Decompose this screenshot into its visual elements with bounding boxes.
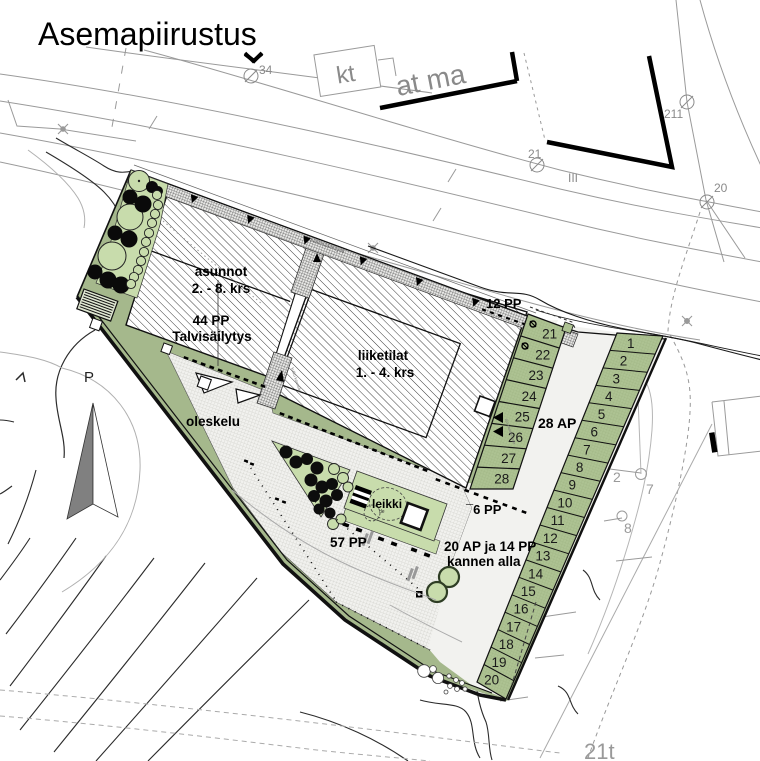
svg-text:44 PP: 44 PP: [193, 313, 230, 328]
svg-text:14: 14: [528, 566, 544, 581]
svg-text:3: 3: [612, 371, 620, 386]
svg-text:1. - 4. krs: 1. - 4. krs: [356, 365, 415, 380]
svg-text:kannen alla: kannen alla: [447, 554, 521, 569]
svg-text:9: 9: [568, 478, 576, 493]
svg-text:25: 25: [515, 410, 530, 425]
svg-text:21t: 21t: [584, 739, 615, 761]
svg-text:57 PP: 57 PP: [330, 535, 367, 550]
svg-text:22: 22: [535, 347, 550, 362]
svg-text:6: 6: [590, 425, 598, 440]
svg-text:12 PP: 12 PP: [486, 296, 522, 311]
svg-text:P: P: [84, 369, 94, 386]
svg-text:19: 19: [491, 655, 506, 670]
svg-text:34: 34: [259, 63, 273, 77]
svg-text:20: 20: [484, 673, 499, 688]
svg-text:20: 20: [714, 181, 728, 195]
svg-text:Asemapiirustus: Asemapiirustus: [38, 16, 257, 52]
svg-text:2. - 8. krs: 2. - 8. krs: [192, 281, 251, 296]
svg-text:8: 8: [576, 460, 584, 475]
svg-text:7: 7: [646, 481, 654, 497]
svg-text:4: 4: [605, 389, 613, 404]
svg-text:leikki: leikki: [372, 497, 402, 511]
svg-text:20 AP ja 14 PP: 20 AP ja 14 PP: [444, 539, 536, 554]
svg-text:21: 21: [528, 147, 542, 161]
svg-text:Talvisäilytys: Talvisäilytys: [172, 329, 251, 344]
svg-text:asunnot: asunnot: [195, 264, 248, 279]
svg-text:12: 12: [543, 531, 558, 546]
svg-text:28: 28: [494, 472, 509, 487]
svg-text:5: 5: [598, 407, 606, 422]
svg-text:8: 8: [624, 520, 632, 536]
svg-text:16: 16: [513, 602, 528, 617]
svg-text:2: 2: [620, 354, 628, 369]
svg-text:23: 23: [528, 368, 543, 383]
svg-text:1: 1: [627, 336, 635, 351]
svg-text:17: 17: [506, 620, 521, 635]
svg-text:13: 13: [535, 549, 550, 564]
svg-text:2: 2: [613, 469, 621, 485]
svg-text:15: 15: [521, 584, 536, 599]
svg-text:11: 11: [551, 513, 565, 528]
svg-text:III: III: [568, 171, 578, 185]
svg-text:18: 18: [499, 637, 514, 652]
svg-text:21: 21: [542, 327, 557, 342]
svg-text:oleskelu: oleskelu: [186, 414, 240, 429]
svg-text:7: 7: [583, 442, 591, 457]
svg-text:28 AP: 28 AP: [538, 415, 576, 431]
svg-text:liiketilat: liiketilat: [358, 348, 409, 363]
svg-text:¯6 PP: ¯6 PP: [465, 502, 502, 517]
svg-text:211: 211: [664, 107, 683, 121]
svg-text:10: 10: [557, 495, 572, 510]
svg-text:27: 27: [501, 451, 516, 466]
svg-text:24: 24: [522, 389, 538, 404]
